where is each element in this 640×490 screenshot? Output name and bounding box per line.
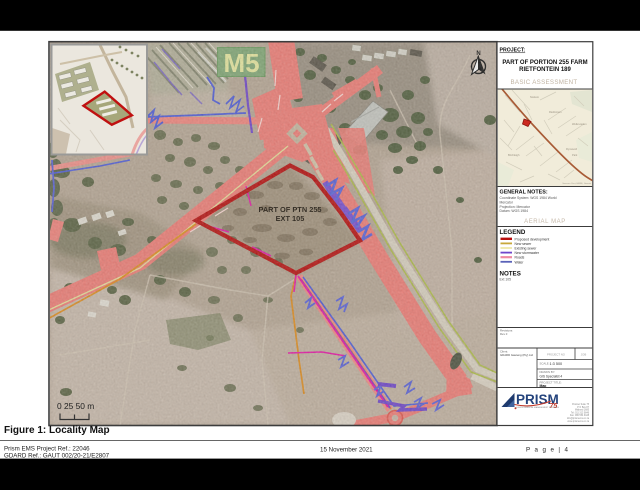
svg-text:Midrand 1685: Midrand 1685 — [575, 409, 590, 412]
svg-text:Sources: Esri, HERE, Garmin: Sources: Esri, HERE, Garmin — [562, 182, 591, 185]
svg-text:P O Box 87: P O Box 87 — [577, 407, 589, 409]
svg-text:Mercator: Mercator — [500, 200, 514, 204]
svg-text:GIS Specialist 4: GIS Specialist 4 — [540, 374, 563, 378]
svg-text:Rynsoord: Rynsoord — [566, 147, 578, 151]
svg-text:SCALE:: SCALE: — [540, 362, 550, 366]
svg-text:Datum: WGS 1984: Datum: WGS 1984 — [500, 209, 529, 213]
svg-text:Postnet Suite 75: Postnet Suite 75 — [572, 403, 590, 406]
svg-text:LEGEND: LEGEND — [500, 229, 526, 236]
svg-text:PROJECT NO: PROJECT NO — [547, 353, 566, 357]
svg-text:Projection: Mercator: Projection: Mercator — [500, 205, 531, 209]
svg-text:Rietfontein: Rietfontein — [549, 110, 562, 114]
svg-text:PROJECT:: PROJECT: — [500, 48, 526, 54]
svg-text:info@prismems.co.za: info@prismems.co.za — [567, 417, 590, 420]
svg-text:ENVIRONMENTAL MANAGEMENT SER: ENVIRONMENTAL MANAGEMENT SERVICES — [517, 406, 560, 409]
svg-text:Weltevreden: Weltevreden — [572, 122, 587, 126]
svg-text:New sewer: New sewer — [515, 242, 533, 246]
svg-text:15 November 2021: 15 November 2021 — [320, 447, 373, 454]
svg-text:P a g e | 4: P a g e | 4 — [526, 447, 569, 454]
svg-text:GDARD Gauteng (Pty) Ltd: GDARD Gauteng (Pty) Ltd — [500, 353, 533, 357]
svg-text:BASIC ASSESSMENT: BASIC ASSESSMENT — [510, 79, 577, 86]
svg-text:NOTES: NOTES — [500, 271, 521, 278]
svg-text:Existing sewer: Existing sewer — [515, 247, 538, 251]
svg-text:Rev 0: Rev 0 — [500, 332, 508, 336]
svg-text:0 25 50 m: 0 25 50 m — [57, 401, 94, 411]
svg-text:GENERAL NOTES:: GENERAL NOTES: — [500, 190, 548, 196]
svg-text:1:3 500: 1:3 500 — [550, 362, 563, 366]
svg-text:Park: Park — [572, 153, 578, 157]
svg-text:PART OF PORTION 255 FARM: PART OF PORTION 255 FARM — [502, 60, 587, 66]
svg-text:RIETFONTEIN 189: RIETFONTEIN 189 — [519, 67, 571, 73]
svg-text:Birchleigh: Birchleigh — [508, 153, 520, 157]
svg-text:AERIAL MAP: AERIAL MAP — [524, 219, 566, 225]
svg-text:Coordinate System: WGS 1984 Wo: Coordinate System: WGS 1984 World — [500, 196, 557, 200]
svg-text:Roads: Roads — [515, 256, 525, 260]
svg-text:www.prismems.co.za: www.prismems.co.za — [567, 420, 589, 423]
svg-text:Ext 105: Ext 105 — [500, 278, 512, 282]
svg-text:Figure 1: Locality Map: Figure 1: Locality Map — [4, 425, 110, 436]
svg-text:Water: Water — [515, 260, 525, 264]
svg-text:New stormwater: New stormwater — [515, 251, 540, 255]
svg-text:Tel: 011 312 0846: Tel: 011 312 0846 — [571, 412, 590, 414]
svg-text:Proposed development: Proposed development — [515, 237, 550, 241]
svg-text:GDARD Ref.: GAUT 002/20-21/E2: GDARD Ref.: GAUT 002/20-21/E2807 — [4, 452, 110, 459]
svg-text:JOB: JOB — [581, 353, 587, 357]
svg-text:Norkem: Norkem — [530, 95, 539, 99]
svg-text:Fax: 086 554 3428: Fax: 086 554 3428 — [570, 415, 590, 417]
